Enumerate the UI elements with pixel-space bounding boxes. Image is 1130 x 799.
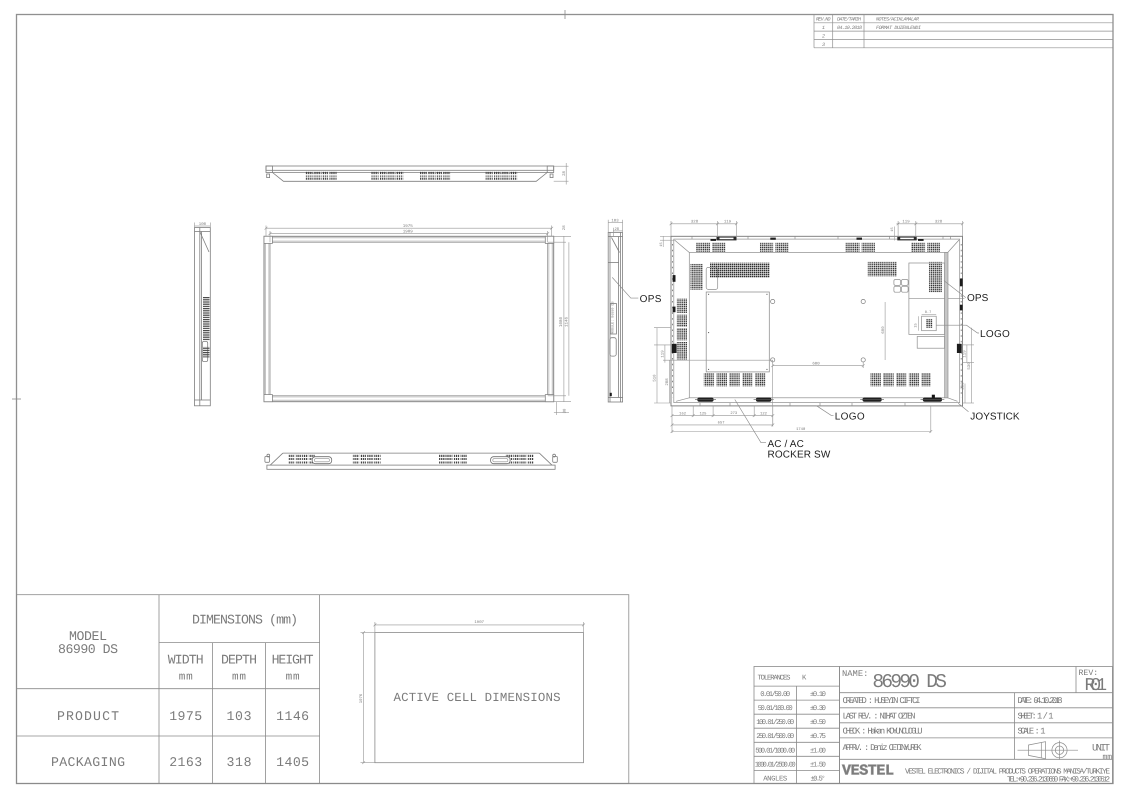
svg-text:CREATED : HUSEYIN CIFTCI: CREATED : HUSEYIN CIFTCI	[843, 696, 921, 706]
svg-text:1000.01/2500.00: 1000.01/2500.00	[755, 760, 796, 769]
svg-text:119: 119	[963, 350, 968, 358]
svg-text:530: 530	[967, 362, 972, 370]
svg-text:1076: 1076	[359, 693, 364, 703]
svg-text:R01: R01	[1085, 676, 1108, 696]
svg-text:VESTEL: VESTEL	[842, 763, 894, 780]
svg-text:MODULE: 86990 DS: MODULE: 86990 DS	[611, 301, 616, 334]
svg-text:15: 15	[914, 323, 919, 327]
svg-text:2: 2	[822, 34, 825, 40]
svg-text:100.01/250.00: 100.01/250.00	[756, 718, 794, 727]
svg-text:±1.50: ±1.50	[810, 761, 826, 769]
svg-text:DEPTH: DEPTH	[221, 652, 257, 667]
svg-text:NAME:: NAME:	[842, 669, 868, 679]
svg-text:500.01/1000.00: 500.01/1000.00	[755, 746, 795, 755]
svg-text:510: 510	[653, 374, 658, 382]
svg-text:PRODUCT: PRODUCT	[57, 709, 119, 724]
svg-text:LOGO: LOGO	[835, 411, 865, 422]
svg-text:8.7: 8.7	[925, 310, 931, 315]
svg-text:1907: 1907	[474, 620, 484, 625]
svg-text:04.10.2018: 04.10.2018	[837, 25, 862, 31]
svg-text:600: 600	[812, 361, 820, 366]
svg-text:273: 273	[730, 411, 738, 416]
svg-text:600: 600	[881, 326, 886, 334]
svg-text:NOTES/ACIKLAMALAR: NOTES/ACIKLAMALAR	[876, 17, 919, 23]
svg-text:ACTIVE CELL DIMENSIONS: ACTIVE CELL DIMENSIONS	[394, 691, 561, 705]
svg-text:28: 28	[562, 171, 567, 176]
svg-text:50.01/100.00: 50.01/100.00	[758, 704, 793, 713]
svg-text:HEIGHT: HEIGHT	[272, 652, 314, 667]
svg-text:103: 103	[611, 218, 619, 223]
svg-text:103: 103	[227, 709, 252, 724]
svg-text:mm: mm	[232, 672, 246, 684]
svg-text:1740: 1740	[796, 427, 806, 432]
svg-text:OPS: OPS	[640, 294, 662, 305]
svg-text:AC / AC: AC / AC	[768, 439, 805, 450]
svg-text:WIDTH: WIDTH	[168, 652, 204, 667]
svg-text:mm: mm	[179, 672, 193, 684]
svg-text:38: 38	[562, 408, 567, 413]
svg-text:DATE/TARIH: DATE/TARIH	[837, 17, 861, 23]
svg-text:CHECK : Hakan KOYUNCUOGLU: CHECK : Hakan KOYUNCUOGLU	[843, 726, 923, 736]
svg-text:328: 328	[691, 220, 699, 225]
svg-text:REV.NO: REV.NO	[816, 17, 831, 23]
svg-text:1146: 1146	[564, 316, 569, 327]
svg-text:K: K	[802, 675, 807, 683]
svg-text:DATE: 04.10.2018: DATE: 04.10.2018	[1018, 696, 1063, 706]
svg-text:APPRV. : Deniz CETINYUREK: APPRV. : Deniz CETINYUREK	[843, 743, 923, 753]
svg-text:288: 288	[665, 378, 670, 386]
svg-text:FORMAT DUZENLENDI: FORMAT DUZENLENDI	[876, 25, 921, 31]
svg-text:119: 119	[902, 220, 910, 225]
svg-text:1405: 1405	[276, 755, 309, 770]
svg-text:1975: 1975	[403, 224, 414, 229]
svg-text:ROCKER SW: ROCKER SW	[768, 450, 831, 461]
svg-text:mm: mm	[286, 672, 300, 684]
svg-text:119: 119	[724, 220, 732, 225]
svg-text:mm: mm	[1103, 753, 1113, 762]
svg-text:1080: 1080	[559, 316, 564, 327]
svg-text:LAST REV. : NIHAT OZTEN: LAST REV. : NIHAT OZTEN	[843, 711, 916, 721]
svg-text:86990 DS: 86990 DS	[872, 671, 947, 693]
svg-text:JOYSTICK: JOYSTICK	[970, 411, 1020, 422]
svg-text:SCALE : 1: SCALE : 1	[1018, 726, 1046, 736]
svg-text:VESTEL ELECTRONICS / DIJITAL P: VESTEL ELECTRONICS / DIJITAL PRODUCTS OP…	[905, 768, 1110, 777]
svg-text:LOGO: LOGO	[980, 329, 1010, 340]
svg-text:TOLERANCES: TOLERANCES	[758, 675, 791, 683]
svg-text:3: 3	[822, 42, 825, 48]
svg-text:0.01/50.00: 0.01/50.00	[760, 690, 790, 699]
svg-text:±0.50: ±0.50	[810, 719, 826, 727]
svg-text:328: 328	[935, 220, 943, 225]
svg-text:162: 162	[679, 411, 687, 416]
svg-text:±0.75: ±0.75	[810, 733, 826, 741]
svg-text:ANGLES: ANGLES	[763, 775, 787, 783]
svg-text:657: 657	[718, 421, 725, 426]
svg-text:318: 318	[227, 755, 252, 770]
svg-text:125: 125	[700, 411, 708, 416]
svg-text:1975: 1975	[169, 709, 202, 724]
svg-text:SHEET: 1 / 1: SHEET: 1 / 1	[1018, 711, 1054, 721]
svg-text:±0.5°: ±0.5°	[811, 775, 826, 783]
svg-text:1: 1	[822, 25, 825, 31]
svg-text:28: 28	[562, 225, 567, 230]
svg-text:OPS: OPS	[967, 293, 989, 304]
svg-text:28: 28	[615, 227, 620, 232]
svg-text:±0.30: ±0.30	[810, 705, 826, 713]
svg-text:2163: 2163	[169, 755, 202, 770]
svg-text:15: 15	[890, 227, 895, 231]
svg-text:1909: 1909	[403, 229, 414, 234]
svg-text:PACKAGING: PACKAGING	[51, 755, 125, 770]
svg-text:288: 288	[961, 382, 966, 390]
svg-text:250.01/500.00: 250.01/500.00	[756, 732, 794, 741]
svg-text:119: 119	[661, 350, 666, 358]
svg-text:86990 DS: 86990 DS	[58, 642, 118, 657]
svg-text:1146: 1146	[276, 709, 309, 724]
svg-text:±0.10: ±0.10	[810, 691, 826, 699]
svg-text:122: 122	[760, 411, 768, 416]
svg-text:±1.00: ±1.00	[810, 747, 826, 755]
svg-text:15: 15	[659, 242, 664, 246]
svg-text:DIMENSIONS (mm): DIMENSIONS (mm)	[192, 613, 298, 628]
svg-text:TEL:+90.236.2130660 FAX:+90.23: TEL:+90.236.2130660 FAX:+90.236.2130512	[1007, 775, 1110, 784]
svg-text:100: 100	[199, 222, 207, 227]
